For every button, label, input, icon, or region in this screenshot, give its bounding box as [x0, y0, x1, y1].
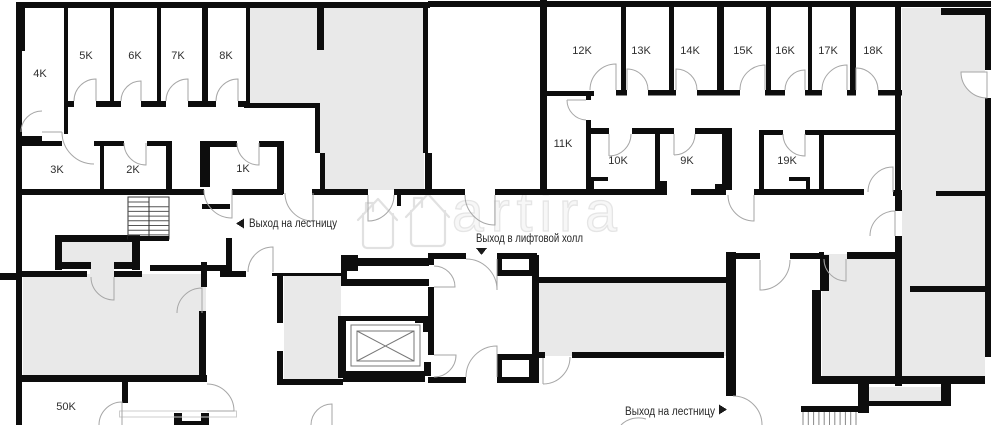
svg-text:18K: 18K	[863, 45, 883, 57]
svg-text:15K: 15K	[733, 45, 753, 57]
svg-text:17K: 17K	[818, 45, 838, 57]
svg-text:13K: 13K	[631, 45, 651, 57]
svg-text:7K: 7K	[171, 50, 185, 62]
svg-text:1K: 1K	[236, 163, 250, 175]
svg-text:Выход на лестницу: Выход на лестницу	[625, 406, 715, 418]
svg-text:10K: 10K	[608, 155, 628, 167]
svg-text:6K: 6K	[128, 50, 142, 62]
svg-text:2K: 2K	[126, 164, 140, 176]
svg-text:Выход в лифтовой холл: Выход в лифтовой холл	[476, 233, 583, 245]
svg-text:50K: 50K	[56, 401, 76, 413]
svg-text:Выход на лестницу: Выход на лестницу	[249, 218, 337, 230]
svg-text:11K: 11K	[554, 138, 573, 150]
svg-text:9K: 9K	[680, 155, 694, 167]
svg-text:8K: 8K	[219, 50, 233, 62]
svg-text:19K: 19K	[777, 155, 797, 167]
svg-text:14K: 14K	[680, 45, 700, 57]
svg-text:3K: 3K	[50, 164, 64, 176]
svg-text:5K: 5K	[79, 50, 93, 62]
svg-text:4K: 4K	[33, 68, 47, 80]
svg-text:12K: 12K	[572, 45, 592, 57]
svg-text:16K: 16K	[775, 45, 795, 57]
